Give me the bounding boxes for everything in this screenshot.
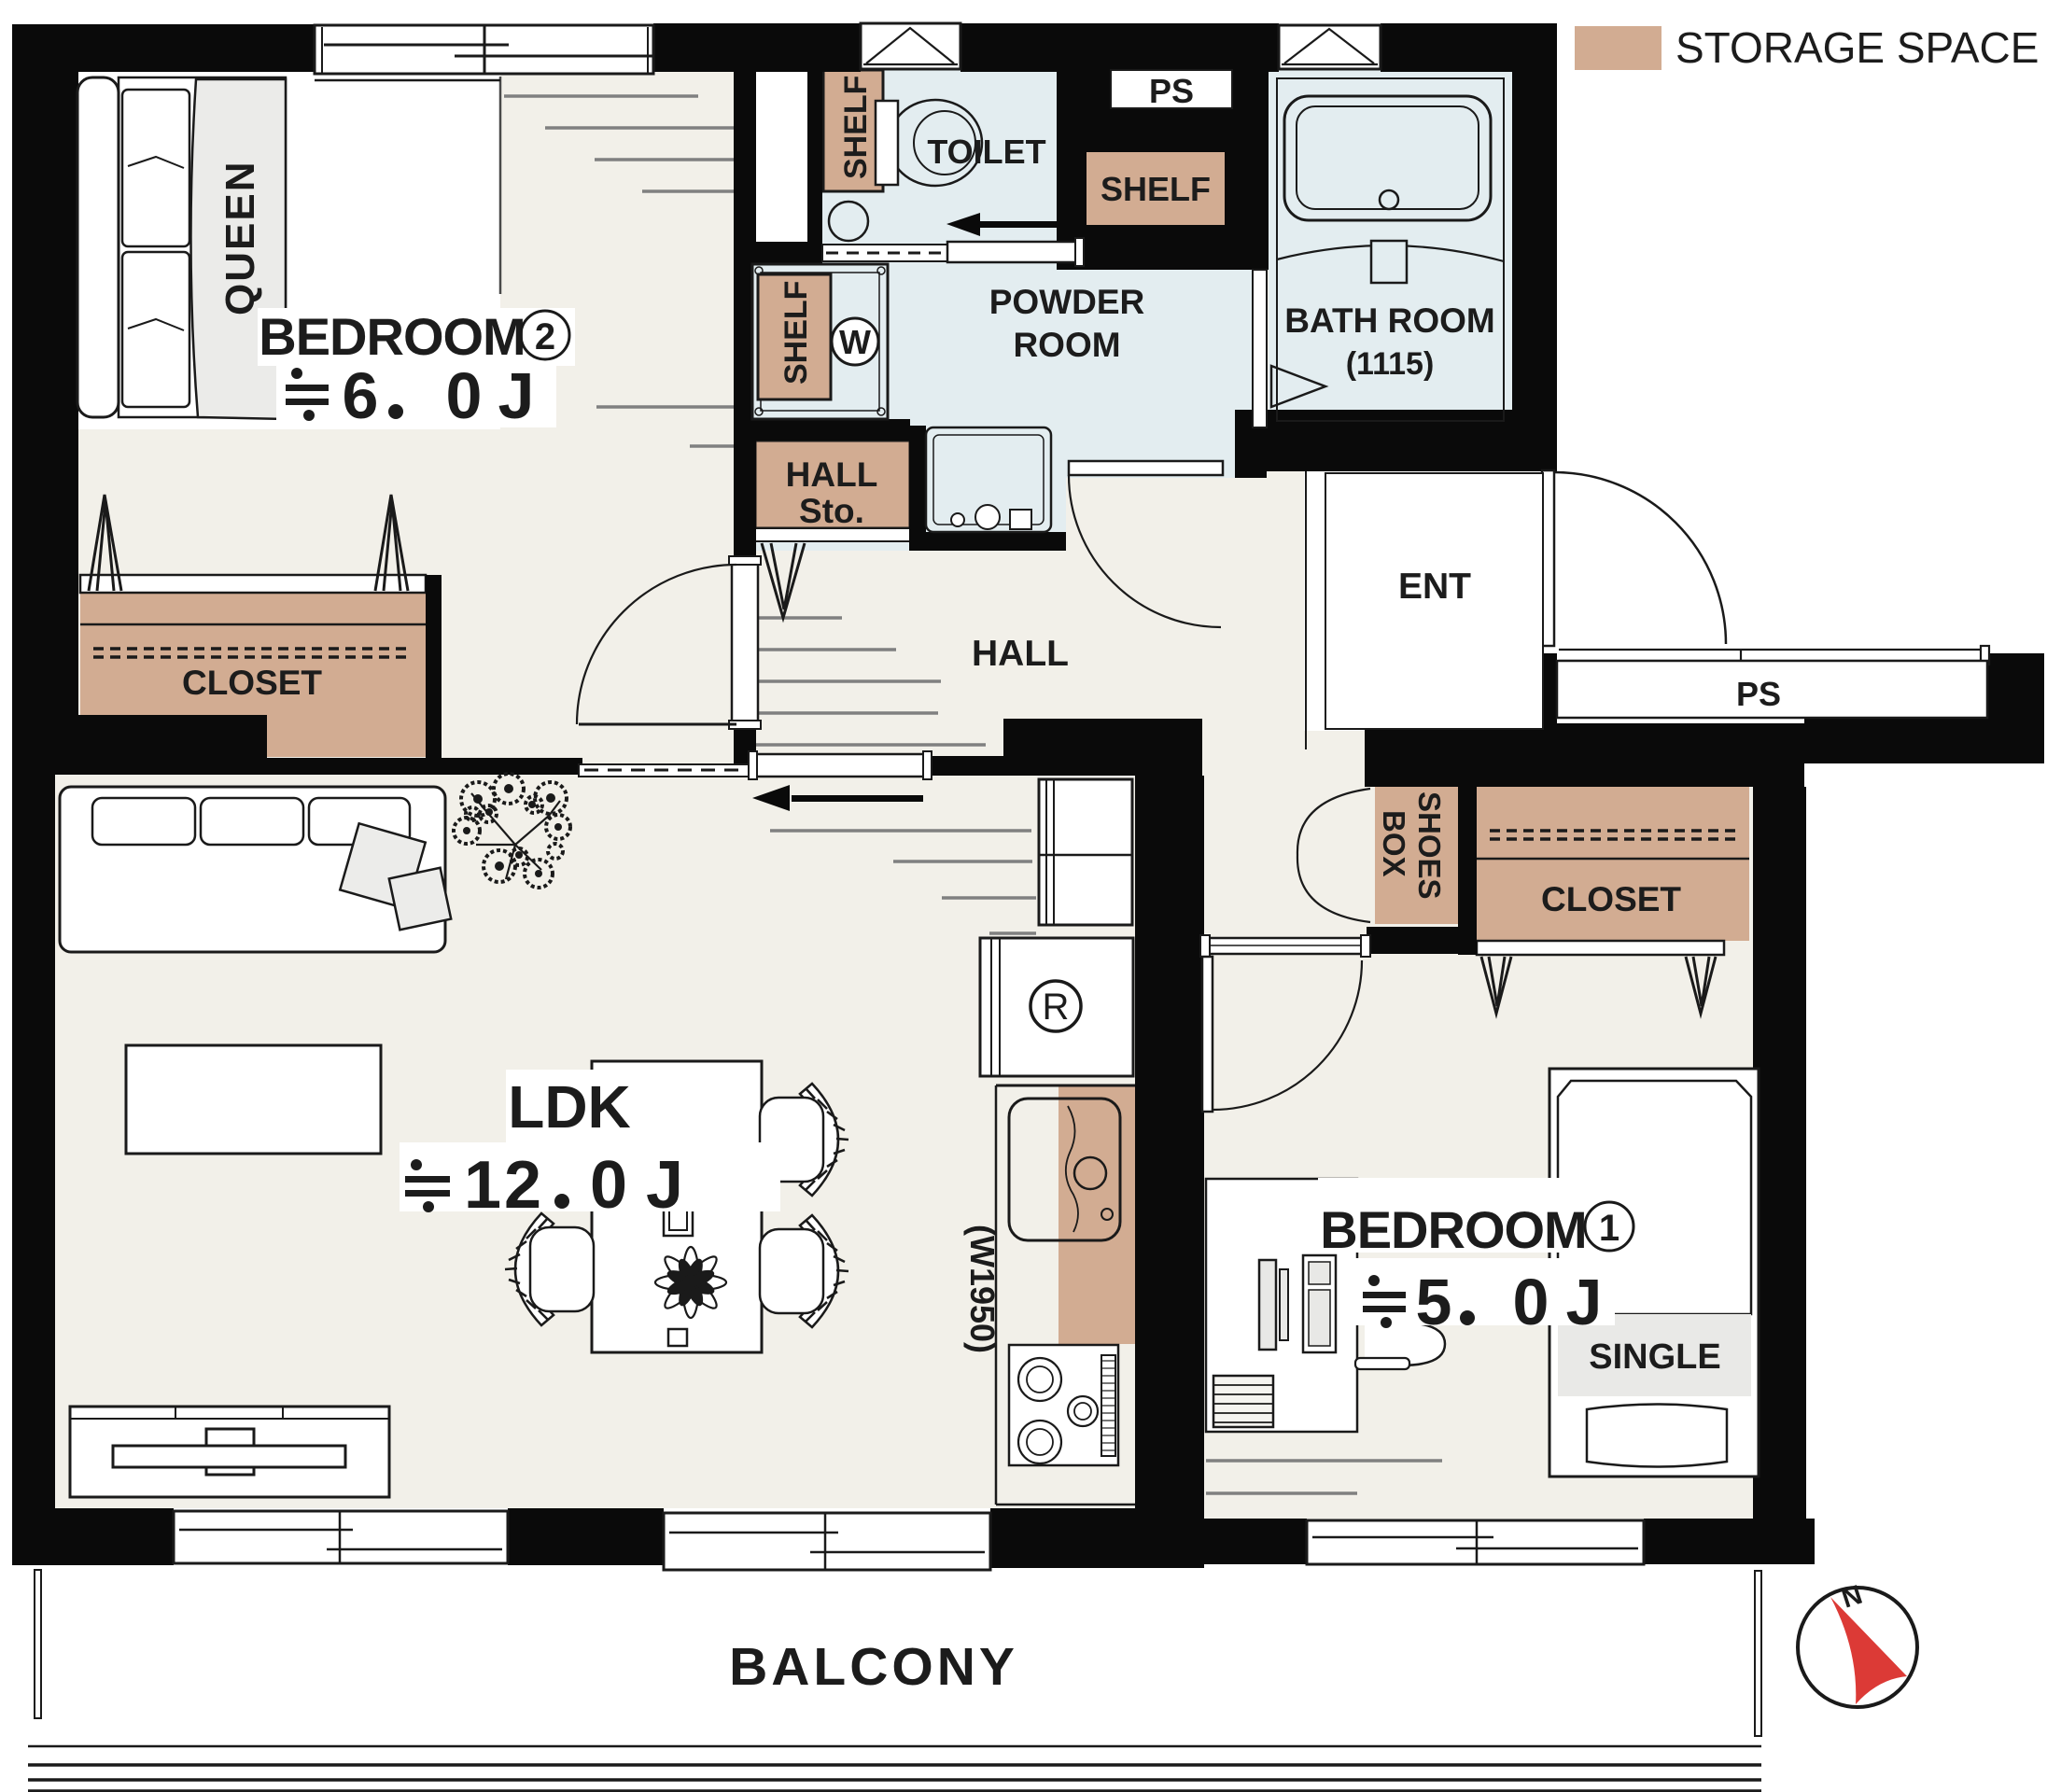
svg-text:ENT: ENT [1398,567,1471,607]
svg-text:ROOM: ROOM [1013,326,1120,364]
svg-text:6: 6 [343,359,379,432]
svg-text:LDK: LDK [508,1073,631,1141]
svg-text:CLOSET: CLOSET [1541,880,1681,918]
svg-text:POWDER: POWDER [989,283,1145,321]
svg-text:5: 5 [1416,1266,1452,1338]
svg-text:PS: PS [1736,675,1781,713]
svg-text:0: 0 [1513,1266,1549,1338]
svg-text:W: W [839,323,871,361]
svg-text:BEDROOM: BEDROOM [1320,1200,1586,1259]
svg-text:SINGLE: SINGLE [1589,1337,1720,1377]
svg-text:2: 2 [535,316,555,357]
svg-text:0: 0 [446,359,483,432]
svg-text:(W1950): (W1950) [963,1225,1002,1353]
svg-text:HALL: HALL [786,455,878,494]
svg-text:BALCONY: BALCONY [729,1637,1018,1697]
svg-text:HALL: HALL [972,634,1069,674]
svg-text:PS: PS [1149,72,1194,110]
svg-text:CLOSET: CLOSET [182,664,322,702]
svg-text:1: 1 [1599,1208,1619,1249]
svg-text:Sto.: Sto. [799,492,864,530]
svg-text:SHELF: SHELF [778,281,814,385]
svg-text:J: J [646,1148,683,1223]
svg-text:QUEEN: QUEEN [217,161,263,315]
svg-text:2: 2 [504,1148,541,1223]
svg-text:1: 1 [464,1148,501,1223]
svg-text:BOX: BOX [1377,810,1411,877]
svg-text:SHOES: SHOES [1412,791,1447,900]
svg-text:(1115): (1115) [1346,346,1435,382]
svg-text:SHELF: SHELF [838,76,874,179]
svg-text:J: J [498,359,535,432]
svg-text:BEDROOM: BEDROOM [259,307,525,366]
svg-text:TOILET: TOILET [927,133,1045,171]
svg-text:J: J [1566,1266,1603,1338]
svg-text:STORAGE SPACE: STORAGE SPACE [1675,23,2039,72]
svg-text:SHELF: SHELF [1101,170,1211,208]
svg-text:0: 0 [590,1148,627,1223]
svg-text:BATH ROOM: BATH ROOM [1284,301,1494,340]
svg-text:R: R [1043,987,1070,1028]
